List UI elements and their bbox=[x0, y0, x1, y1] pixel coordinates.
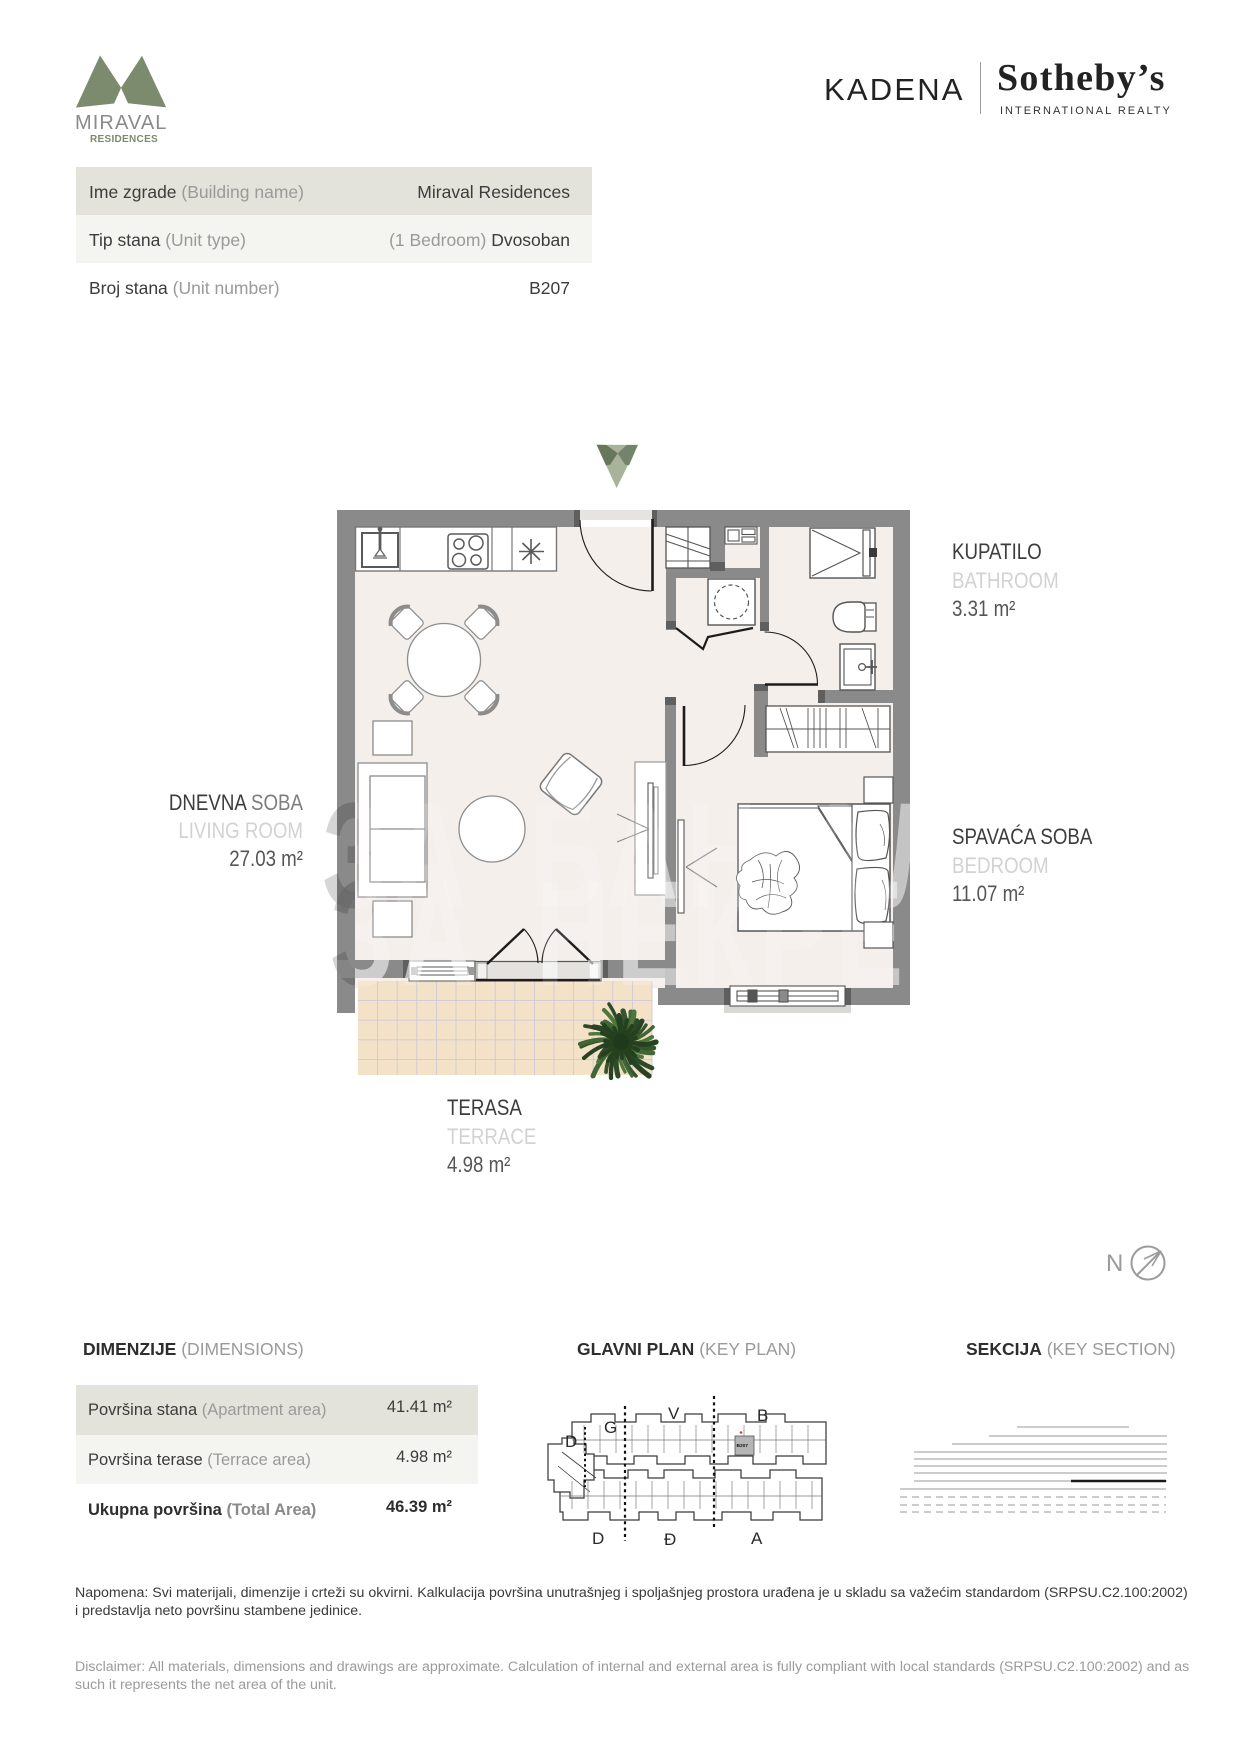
svg-text:V: V bbox=[668, 1404, 680, 1423]
svg-text:B207: B207 bbox=[737, 1443, 749, 1449]
svg-text:Đ: Đ bbox=[664, 1530, 676, 1549]
svg-text:B: B bbox=[757, 1406, 768, 1425]
svg-text:D: D bbox=[565, 1432, 577, 1451]
svg-text:N: N bbox=[1106, 1250, 1123, 1277]
svg-text:G: G bbox=[604, 1418, 617, 1437]
svg-text:D: D bbox=[592, 1529, 604, 1548]
svg-text:A: A bbox=[751, 1529, 763, 1548]
